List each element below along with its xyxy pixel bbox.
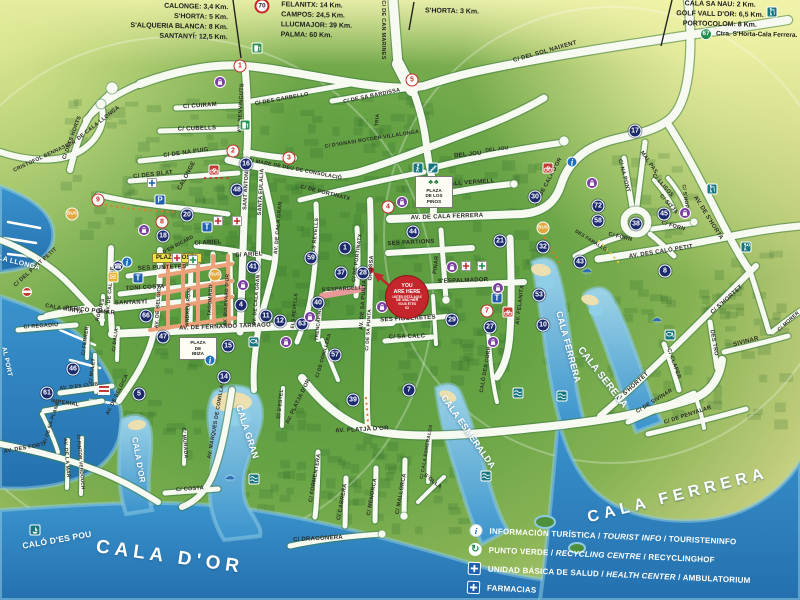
distance-panel-west: CALONGE: 3,4 Km.S'HORTA: 5 Km.S'ALQUERIA… — [118, 1, 229, 43]
hotel-marker[interactable]: 1 — [339, 242, 352, 255]
bus-stop-marker[interactable]: BUS — [66, 208, 79, 221]
tourist-info-icon: i — [469, 524, 483, 538]
hotel-marker[interactable]: 18 — [157, 230, 170, 243]
hotel-marker[interactable]: 72 — [592, 200, 605, 213]
hotel-marker[interactable]: 40 — [312, 297, 325, 310]
health-cross-icon — [467, 581, 481, 595]
hotel-marker[interactable]: 16 — [240, 158, 253, 171]
route-marker[interactable]: 3 — [283, 152, 296, 165]
route-marker[interactable]: 9 — [92, 194, 105, 207]
distance-label-shorta: S'HORTA: 3 Km. — [425, 6, 479, 17]
hotel-marker[interactable]: 59 — [305, 252, 318, 265]
map-legend: iINFORMACIÓN TURÍSTICA / TOURIST INFO / … — [467, 524, 800, 600]
boat-icon[interactable] — [30, 525, 41, 536]
you-are-here-marker: YOUARE HEREUSTED ESTÁ AQUÍSIE SIND HIERV… — [385, 275, 429, 319]
distance-line: PALMA: 60 Km. — [281, 30, 352, 41]
hotel-marker[interactable]: 47 — [157, 331, 170, 344]
hotel-marker[interactable]: 44 — [407, 226, 420, 239]
umbrella-icon[interactable]: ☂ — [652, 315, 663, 329]
post-icon[interactable]: ✉ — [108, 272, 119, 283]
you-are-here-line: ICI — [405, 307, 409, 311]
hotel-marker[interactable]: 57 — [329, 349, 342, 362]
route-marker[interactable]: 4 — [382, 201, 395, 214]
hotel-marker[interactable]: 12 — [274, 315, 287, 328]
hotel-marker[interactable]: 39 — [347, 394, 360, 407]
shopping-icon[interactable] — [280, 336, 292, 348]
cross-green-icon[interactable] — [477, 261, 487, 271]
hotel-marker[interactable]: 5 — [133, 388, 146, 401]
cross-red-icon[interactable] — [172, 253, 182, 263]
legend-text: FARMACIAS — [487, 584, 537, 595]
street-label: C/ SA CALC — [389, 333, 426, 340]
street-label: C/ DE CAN MARINES — [379, 0, 385, 59]
hotel-marker[interactable]: 53 — [533, 289, 546, 302]
golf-icon[interactable] — [767, 7, 778, 18]
taxi-icon[interactable]: T — [492, 293, 503, 304]
info-icon[interactable]: i — [567, 157, 578, 168]
shopping-icon[interactable] — [214, 76, 226, 88]
cross-red-icon[interactable] — [232, 216, 242, 226]
hotel-marker[interactable]: 48 — [231, 184, 244, 197]
hotel-marker[interactable]: 11 — [260, 310, 273, 323]
cross-red-icon[interactable] — [461, 261, 471, 271]
health-cross-icon — [468, 562, 482, 576]
hotel-marker[interactable]: 46 — [67, 363, 80, 376]
tennis-icon[interactable] — [741, 242, 752, 253]
hotel-marker[interactable]: 66 — [140, 310, 153, 323]
golf-icon[interactable] — [707, 184, 718, 195]
hotel-marker[interactable]: 30 — [529, 191, 542, 204]
monument-icon[interactable] — [22, 287, 32, 297]
shopping-icon[interactable] — [487, 336, 499, 348]
road-67-reference: 67 Ctra. S'Horta-Cala Ferrera. — [700, 28, 798, 42]
waves-icon[interactable] — [249, 474, 260, 485]
diving-icon[interactable] — [249, 337, 260, 348]
route-marker[interactable]: 1 — [234, 60, 247, 73]
plaza-name-line: PINOS — [419, 199, 449, 205]
hotel-marker[interactable]: 15 — [222, 340, 235, 353]
walking-icon[interactable] — [413, 163, 424, 174]
waves-icon[interactable] — [557, 391, 568, 402]
route-marker[interactable]: 8 — [156, 216, 169, 229]
hotel-marker[interactable]: 10 — [537, 319, 550, 332]
route-marker[interactable]: 5 — [406, 74, 419, 87]
shopping-icon[interactable] — [446, 261, 458, 273]
legend-text: UNIDAD BÁSICA DE SALUD / HEALTH CENTER /… — [488, 565, 751, 585]
tourist-map: CALONGE: 3,4 Km.S'HORTA: 5 Km.S'ALQUERIA… — [0, 0, 800, 600]
hotel-marker[interactable]: 32 — [537, 241, 550, 254]
church-icon[interactable] — [98, 385, 110, 395]
shopping-icon[interactable] — [138, 224, 150, 236]
hotel-marker[interactable]: 4 — [235, 299, 248, 312]
waves-icon[interactable] — [481, 471, 492, 482]
shopping-icon[interactable] — [586, 177, 598, 189]
hotel-marker[interactable]: 20 — [181, 209, 194, 222]
hotel-marker[interactable]: 27 — [484, 321, 497, 334]
shopping-icon[interactable] — [304, 311, 316, 323]
diving-icon[interactable] — [665, 330, 676, 341]
bike-icon[interactable] — [209, 165, 220, 176]
cross-blue-icon[interactable] — [147, 178, 157, 188]
hotel-marker[interactable]: 61 — [41, 387, 54, 400]
shopping-icon[interactable] — [237, 279, 249, 291]
hotel-marker[interactable]: 28 — [357, 267, 370, 280]
hotel-marker[interactable]: 38 — [630, 218, 643, 231]
distance-panel-north: FELANITX: 14 Km.CAMPOS: 24,5 Km.LLUCMAJO… — [281, 0, 353, 41]
cross-red-icon[interactable] — [213, 216, 223, 226]
parking-icon[interactable]: P — [155, 195, 166, 206]
bus-stop-marker[interactable]: BUS — [209, 269, 222, 282]
cross-green-icon[interactable] — [188, 255, 198, 265]
hotel-marker[interactable]: 8 — [659, 265, 672, 278]
road-67-text: Ctra. S'Horta-Cala Ferrera. — [716, 29, 798, 41]
hotel-marker[interactable]: 17 — [629, 125, 642, 138]
legend-text: PUNTO VERDE / RECYCLING CENTRE / RECYCLI… — [488, 546, 714, 565]
hotel-marker[interactable]: 29 — [446, 314, 459, 327]
umbrella-icon[interactable]: ☂ — [225, 473, 236, 487]
hotel-marker[interactable]: 7 — [403, 384, 416, 397]
hotel-marker[interactable]: 45 — [658, 208, 671, 221]
hotel-marker[interactable]: 37 — [335, 267, 348, 280]
shopping-icon[interactable] — [492, 282, 504, 294]
street-label: SANTANYÍ — [115, 299, 147, 306]
hotel-marker[interactable]: 14 — [218, 371, 231, 384]
shopping-icon[interactable] — [679, 207, 691, 219]
waves-icon[interactable] — [513, 388, 524, 399]
route-marker[interactable]: 7 — [481, 305, 494, 318]
taxi-icon[interactable]: T — [133, 273, 144, 284]
hotel-marker[interactable]: 58 — [592, 215, 605, 228]
fuel-icon[interactable] — [240, 120, 251, 131]
route-marker[interactable]: 2 — [227, 145, 240, 158]
tree-icon: ♣♣ — [419, 179, 449, 188]
umbrella-icon[interactable]: ☂ — [582, 266, 593, 280]
stairs-icon[interactable] — [428, 163, 439, 174]
bus-stop-marker[interactable]: BUS — [537, 222, 550, 235]
plaza-label-box: ♣♣PLAZADE LOSPINOS — [415, 176, 453, 208]
road-67-sign-icon: 67 — [700, 28, 712, 40]
info-icon[interactable]: i — [205, 355, 216, 366]
bike-icon[interactable] — [503, 307, 514, 318]
shopping-icon[interactable] — [396, 196, 408, 208]
recycling-icon: ↻ — [468, 543, 482, 557]
bike-icon[interactable] — [543, 163, 554, 174]
taxi-icon[interactable]: T — [202, 222, 213, 233]
fuel-icon[interactable] — [252, 43, 263, 54]
phone-icon[interactable]: ☎ — [113, 261, 124, 272]
hotel-marker[interactable]: 21 — [494, 235, 507, 248]
hotel-marker[interactable]: 41 — [247, 261, 260, 274]
